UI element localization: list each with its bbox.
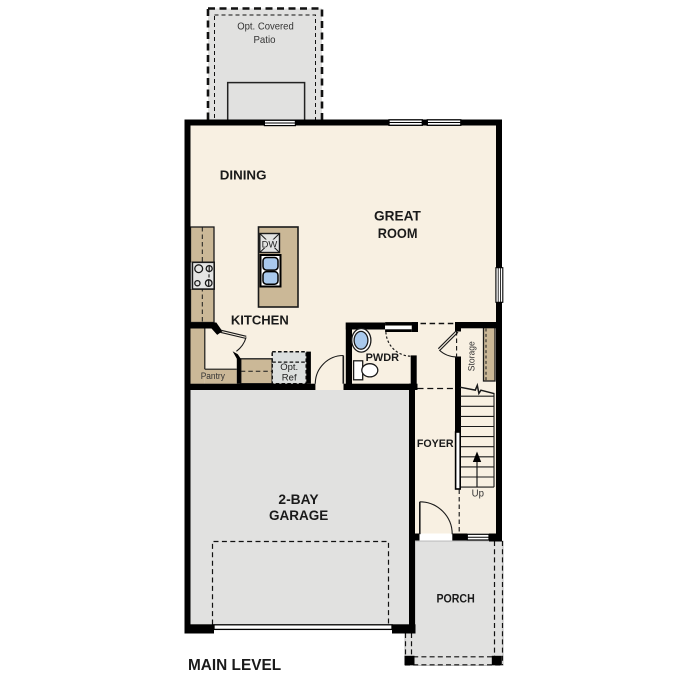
svg-text:GARAGE: GARAGE [269, 508, 328, 523]
svg-text:PORCH: PORCH [436, 592, 474, 606]
svg-text:Opt. Covered: Opt. Covered [237, 21, 294, 33]
svg-text:DW: DW [262, 238, 278, 249]
svg-text:ROOM: ROOM [378, 225, 418, 241]
svg-text:GREAT: GREAT [374, 208, 421, 224]
svg-text:Ref: Ref [282, 372, 297, 383]
svg-text:MAIN LEVEL: MAIN LEVEL [188, 657, 281, 674]
svg-text:FOYER: FOYER [417, 438, 454, 450]
svg-text:Patio: Patio [254, 34, 276, 46]
svg-text:PWDR: PWDR [366, 352, 399, 364]
svg-text:DINING: DINING [220, 167, 267, 182]
svg-text:Pantry: Pantry [201, 371, 226, 381]
svg-text:KITCHEN: KITCHEN [231, 313, 289, 328]
svg-text:Storage: Storage [467, 341, 478, 371]
svg-text:Up: Up [472, 489, 485, 500]
svg-text:2-BAY: 2-BAY [278, 492, 318, 507]
